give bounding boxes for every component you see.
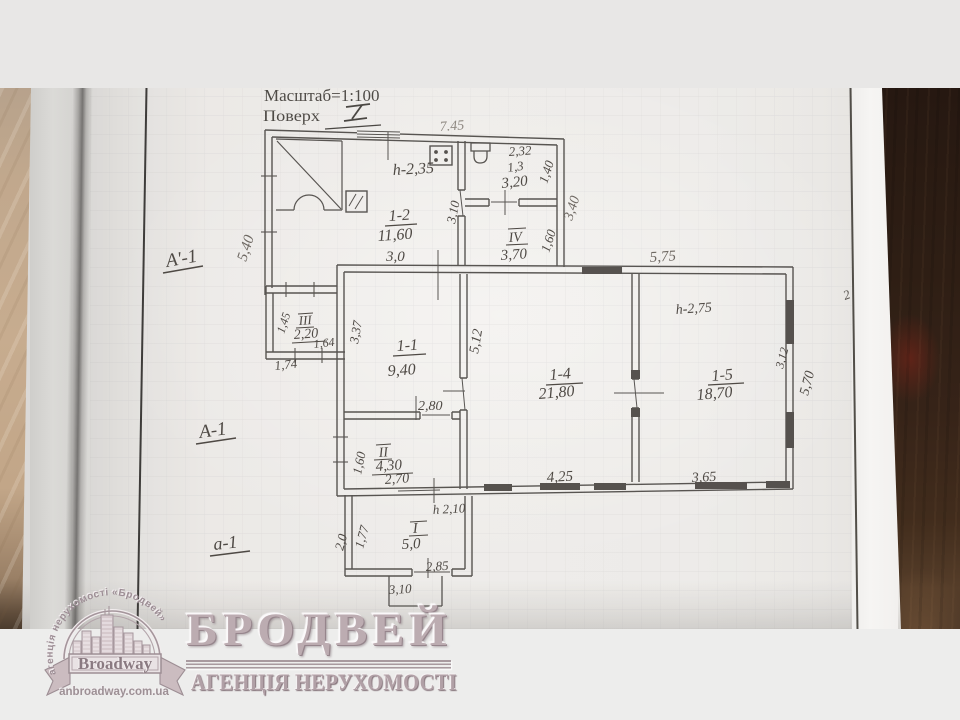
- svg-text:Broadway: Broadway: [78, 654, 153, 673]
- svg-text:anbroadway.com.ua: anbroadway.com.ua: [59, 686, 169, 698]
